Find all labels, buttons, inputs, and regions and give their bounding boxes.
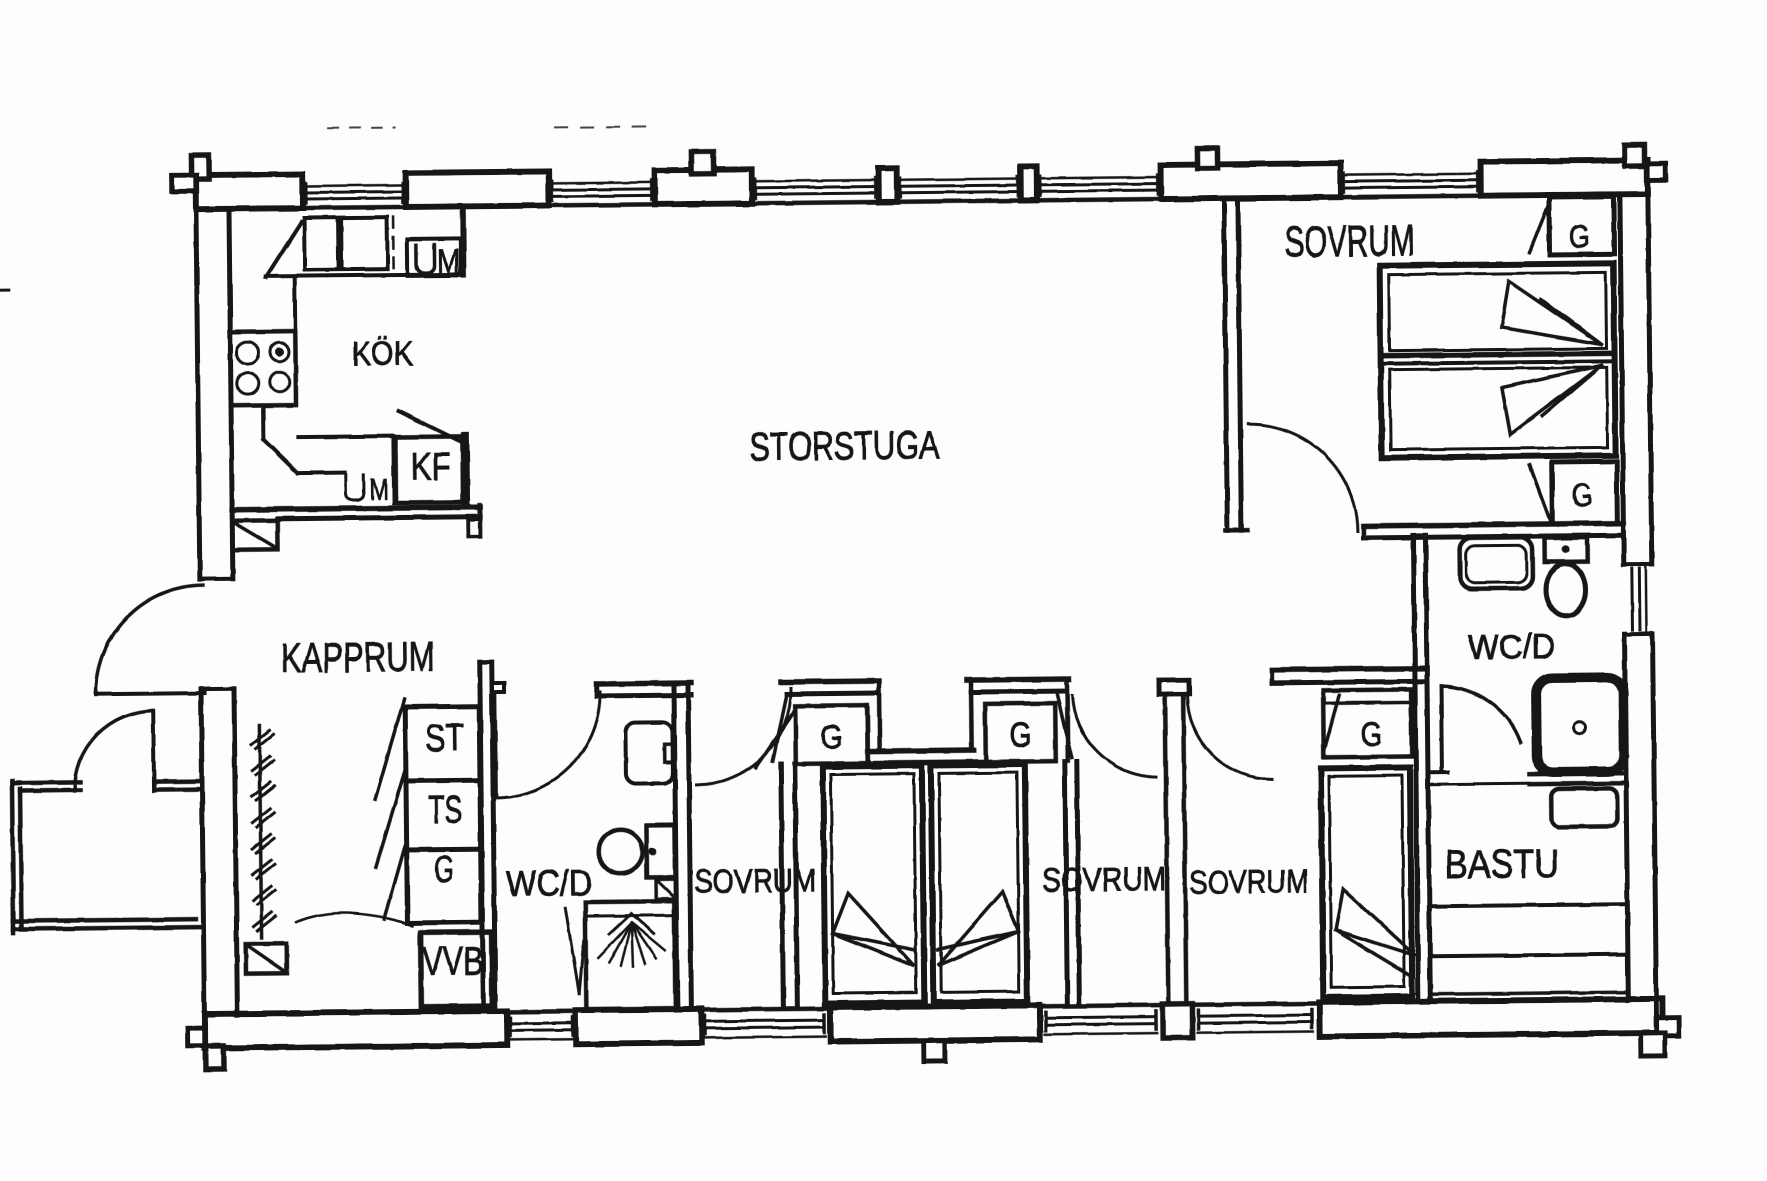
- svg-text:SOVRUM: SOVRUM: [1284, 216, 1415, 266]
- svg-text:ST: ST: [425, 717, 464, 759]
- svg-text:VVB: VVB: [422, 939, 483, 984]
- svg-text:SOVRUM: SOVRUM: [1189, 863, 1308, 901]
- svg-text:M: M: [369, 473, 388, 506]
- svg-text:KAPPRUM: KAPPRUM: [280, 633, 434, 682]
- svg-text:KF: KF: [410, 445, 450, 488]
- svg-text:G: G: [1009, 716, 1031, 754]
- svg-text:KÖK: KÖK: [351, 335, 414, 374]
- svg-text:G: G: [1360, 716, 1382, 754]
- svg-text:M: M: [437, 242, 460, 280]
- svg-text:G: G: [434, 848, 454, 889]
- svg-text:WC/D: WC/D: [1468, 628, 1555, 667]
- svg-text:G: G: [820, 718, 842, 756]
- svg-text:SOVRUM: SOVRUM: [694, 862, 816, 900]
- svg-text:STORSTUGA: STORSTUGA: [749, 423, 940, 469]
- svg-text:G: G: [1569, 219, 1590, 255]
- svg-text:WC/D: WC/D: [506, 862, 592, 904]
- svg-text:TS: TS: [428, 789, 462, 831]
- svg-text:G: G: [1571, 478, 1592, 514]
- svg-text:BASTU: BASTU: [1445, 842, 1559, 887]
- svg-text:SOVRUM: SOVRUM: [1042, 860, 1166, 898]
